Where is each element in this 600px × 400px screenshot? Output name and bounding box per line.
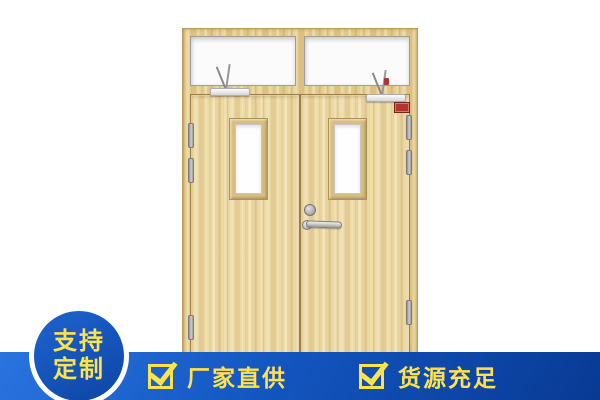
check-mark-icon xyxy=(359,354,388,385)
check-mark-icon xyxy=(148,354,177,385)
customization-badge: 支持 定制 xyxy=(29,306,129,400)
door-closer-left xyxy=(210,64,256,98)
handle-lever xyxy=(306,220,342,228)
checkbox-checked-icon xyxy=(359,364,384,389)
hinge xyxy=(406,300,412,325)
hinge xyxy=(406,150,412,175)
banner-item-label: 货源充足 xyxy=(398,359,498,393)
badge-text-line1: 支持 xyxy=(53,328,105,356)
checkbox-checked-icon xyxy=(148,364,173,389)
lock-cylinder xyxy=(304,204,316,216)
door-closer-arm xyxy=(225,64,230,88)
badge-text-line2: 定制 xyxy=(53,356,105,384)
banner-item-ample-supply: 货源充足 xyxy=(359,359,498,393)
vision-panel-left-glass xyxy=(235,124,262,194)
door-closer-right xyxy=(366,70,412,104)
hinge xyxy=(406,115,412,140)
vision-panel-right-glass xyxy=(334,124,361,194)
vision-panel-right xyxy=(328,118,367,200)
door-closer-body xyxy=(366,94,406,102)
product-image: 支持 定制 厂家直供 货源充足 xyxy=(0,0,600,400)
vision-panel-left xyxy=(229,118,268,200)
double-door-graphic xyxy=(182,28,418,355)
door-closer-arm xyxy=(372,72,382,94)
hinge xyxy=(188,123,194,148)
door-closer-body xyxy=(210,88,250,96)
fire-rating-label xyxy=(394,102,410,113)
banner-item-label: 厂家直供 xyxy=(187,359,287,393)
door-closer-red-accent xyxy=(384,78,389,85)
hinge xyxy=(188,158,194,183)
door-closer-arm xyxy=(216,66,226,88)
promo-banner-items: 厂家直供 货源充足 xyxy=(148,359,498,393)
hinge xyxy=(188,315,194,340)
door-handle xyxy=(302,218,344,234)
banner-item-factory-direct: 厂家直供 xyxy=(148,359,287,393)
